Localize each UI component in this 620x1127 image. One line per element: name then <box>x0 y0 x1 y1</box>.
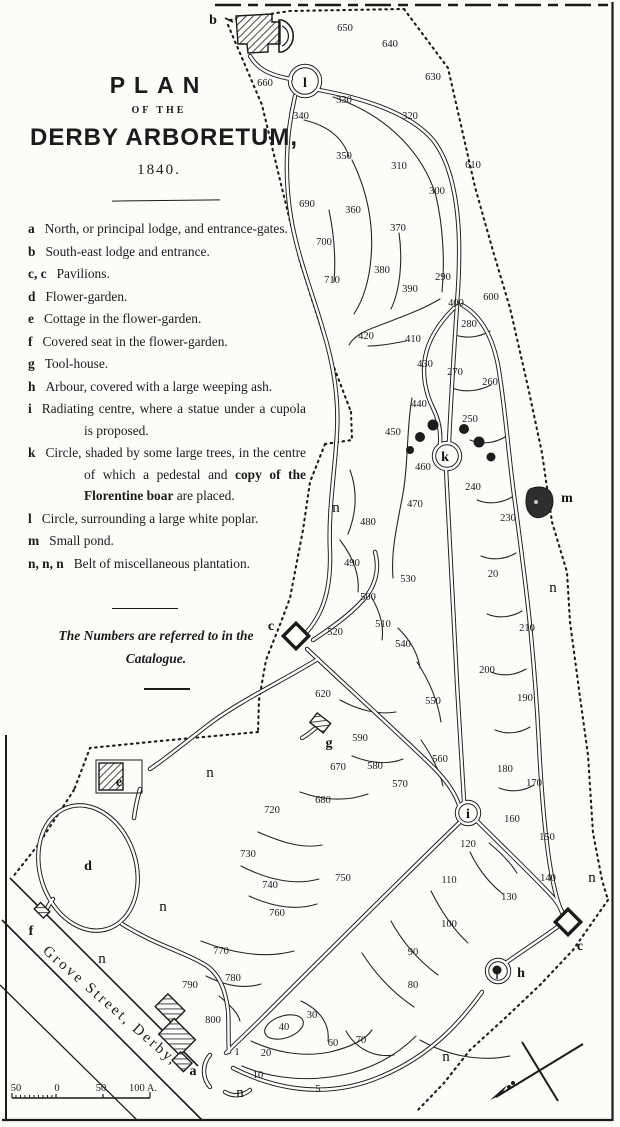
letter-marker-a: a <box>190 1064 197 1079</box>
legend-key: f <box>28 334 42 349</box>
legend-key: a <box>28 221 45 236</box>
catalogue-number-10: 10 <box>253 1070 264 1081</box>
catalogue-number-620: 620 <box>315 689 331 700</box>
letter-marker-h: h <box>517 966 525 981</box>
legend-text: South-east lodge and entrance. <box>45 244 209 259</box>
catalogue-number-400: 400 <box>448 298 464 309</box>
catalogue-number-720: 720 <box>264 805 280 816</box>
catalogue-number-360: 360 <box>345 205 361 216</box>
catalogue-number-430: 430 <box>417 359 433 370</box>
scale-label-1: 0 <box>54 1083 59 1094</box>
letter-marker-n: n <box>236 1085 244 1101</box>
catalogue-number-80: 80 <box>408 980 419 991</box>
letter-marker-n: n <box>206 765 214 781</box>
legend-key: m <box>28 533 49 548</box>
letter-marker-l: l <box>303 76 307 91</box>
legend-text: Pavilions. <box>57 266 110 281</box>
catalogue-number-260: 260 <box>482 377 498 388</box>
legend-key: l <box>28 511 42 526</box>
legend-key: h <box>28 379 45 394</box>
catalogue-number-780: 780 <box>225 973 241 984</box>
legend-item-f: fCovered seat in the flower-garden. <box>28 331 306 353</box>
catalogue-number-480: 480 <box>360 517 376 528</box>
catalogue-number-130: 130 <box>501 892 517 903</box>
catalogue-number-5: 5 <box>315 1084 320 1095</box>
catalogue-number-510: 510 <box>375 619 391 630</box>
catalogue-number-740: 740 <box>262 880 278 891</box>
catalogue-number-280: 280 <box>461 319 477 330</box>
catalogue-number-580: 580 <box>367 761 383 772</box>
catalogue-number-650: 650 <box>337 23 353 34</box>
legend-key: d <box>28 289 45 304</box>
catalogue-number-390: 390 <box>402 284 418 295</box>
letter-marker-g: g <box>326 736 333 751</box>
catalogue-number-560: 560 <box>432 754 448 765</box>
catalogue-number-180: 180 <box>497 764 513 775</box>
legend-item-m: mSmall pond. <box>28 530 306 552</box>
catalogue-number-520: 520 <box>327 627 343 638</box>
letter-marker-n: n <box>159 899 167 915</box>
catalogue-number-210: 210 <box>519 623 535 634</box>
legend-text: Radiating centre, where a statue under a… <box>42 401 306 438</box>
catalogue-number-140: 140 <box>540 873 556 884</box>
letter-marker-n: n <box>588 870 596 886</box>
scale-bar: 50 0 50 100 A. <box>11 1083 157 1098</box>
legend-key: g <box>28 356 45 371</box>
catalogue-number-790: 790 <box>182 980 198 991</box>
map-sheet: Grove Street, Derby, <box>0 0 620 1127</box>
legend-text: Circle, shaded by some large trees, in t… <box>45 445 306 503</box>
catalogue-number-150: 150 <box>539 832 555 843</box>
catalogue-number-190: 190 <box>517 693 533 704</box>
catalogue-number-460: 460 <box>415 462 431 473</box>
catalogue-number-100: 100 <box>441 919 457 930</box>
legend-item-i: iRadiating centre, where a statue under … <box>28 398 306 441</box>
catalogue-number-1: 1 <box>234 1047 239 1058</box>
legend-item-a: aNorth, or principal lodge, and entrance… <box>28 218 306 240</box>
catalogue-number-410: 410 <box>405 334 421 345</box>
scale-label-2: 50 <box>96 1083 107 1094</box>
letter-marker-d: d <box>84 859 92 874</box>
catalogue-number-370: 370 <box>390 223 406 234</box>
legend-item-h: hArbour, covered with a large weeping as… <box>28 376 306 398</box>
catalogue-number-110: 110 <box>441 875 456 886</box>
legend-item-cc: c, cPavilions. <box>28 263 306 285</box>
catalogue-number-310: 310 <box>391 161 407 172</box>
legend-item-nnn: n, n, nBelt of miscellaneous plantation. <box>28 553 306 575</box>
catalogue-number-570: 570 <box>392 779 408 790</box>
catalogue-number-120: 120 <box>460 839 476 850</box>
legend-text: Arbour, covered with a large weeping ash… <box>45 379 272 394</box>
letter-marker-n: n <box>549 580 557 596</box>
catalogue-number-340: 340 <box>293 111 309 122</box>
compass-rose <box>490 1042 583 1101</box>
scale-label-3: 100 A. <box>129 1083 157 1094</box>
legend-item-g: gTool-house. <box>28 353 306 375</box>
catalogue-number-440: 440 <box>411 399 427 410</box>
catalogue-number-250: 250 <box>462 414 478 425</box>
small-pond-m <box>526 487 553 518</box>
letter-marker-k: k <box>441 450 449 465</box>
catalogue-number-30: 30 <box>307 1010 318 1021</box>
letter-marker-b: b <box>209 13 217 28</box>
catalogue-number-750: 750 <box>335 873 351 884</box>
catalogue-number-70: 70 <box>356 1035 367 1046</box>
legend-text: Small pond. <box>49 533 114 548</box>
title-year: 1840. <box>30 162 288 179</box>
catalogue-number-320: 320 <box>402 111 418 122</box>
catalogue-number-470: 470 <box>407 499 423 510</box>
catalogue-number-90: 90 <box>408 947 419 958</box>
catalogue-number-760: 760 <box>269 908 285 919</box>
divider-rule-legend <box>112 608 178 609</box>
legend-text: Cottage in the flower-garden. <box>44 311 201 326</box>
legend-key: i <box>28 401 42 416</box>
legend-item-l: lCircle, surrounding a large white popla… <box>28 508 306 530</box>
catalogue-number-290: 290 <box>435 272 451 283</box>
catalogue-number-540: 540 <box>395 639 411 650</box>
legend-key: k <box>28 445 45 460</box>
letter-marker-i: i <box>466 807 470 822</box>
map-title-block: PLAN OF THE DERBY ARBORETUM, 1840. <box>30 72 288 179</box>
scale-label-0: 50 <box>11 1083 22 1094</box>
catalogue-number-330: 330 <box>336 95 352 106</box>
catalogue-number-380: 380 <box>374 265 390 276</box>
letter-marker-n: n <box>442 1049 450 1065</box>
catalogue-number-20: 20 <box>488 569 499 580</box>
catalogue-number-450: 450 <box>385 427 401 438</box>
catalogue-number-200: 200 <box>479 665 495 676</box>
catalogue-number-640: 640 <box>382 39 398 50</box>
legend-key: c, c <box>28 266 57 281</box>
catalogue-number-680: 680 <box>315 795 331 806</box>
weeping-ash-tree-h <box>493 966 502 980</box>
legend-item-k: kCircle, shaded by some large trees, in … <box>28 442 306 507</box>
catalogue-number-60: 60 <box>328 1038 339 1049</box>
catalogue-number-160: 160 <box>504 814 520 825</box>
catalogue-number-240: 240 <box>465 482 481 493</box>
legend-text: Tool-house. <box>45 356 108 371</box>
title-name: DERBY ARBORETUM, <box>30 124 288 152</box>
catalogue-number-40: 40 <box>279 1022 290 1033</box>
catalogue-number-670: 670 <box>330 762 346 773</box>
letter-marker-n: n <box>98 951 106 967</box>
legend-item-d: dFlower-garden. <box>28 286 306 308</box>
legend-text: North, or principal lodge, and entrance-… <box>45 221 288 236</box>
letter-marker-e: e <box>116 775 122 790</box>
catalogue-number-710: 710 <box>324 275 340 286</box>
catalogue-number-800: 800 <box>205 1015 221 1026</box>
catalogue-number-20: 20 <box>261 1048 272 1059</box>
legend-text: Flower-garden. <box>45 289 127 304</box>
catalogue-number-770: 770 <box>213 946 229 957</box>
legend-key: n, n, n <box>28 556 74 571</box>
building-pavilion-west-c <box>283 623 308 648</box>
title-of-the: OF THE <box>30 105 288 116</box>
catalogue-number-490: 490 <box>344 558 360 569</box>
title-plan: PLAN <box>30 72 288 99</box>
catalogue-number-610: 610 <box>465 160 481 171</box>
catalogue-number-600: 600 <box>483 292 499 303</box>
letter-marker-n: n <box>332 500 340 516</box>
catalogue-note: The Numbers are referred to in the Catal… <box>34 624 278 670</box>
legend-list: aNorth, or principal lodge, and entrance… <box>28 218 306 575</box>
letter-marker-f: f <box>29 924 34 939</box>
legend-key: e <box>28 311 44 326</box>
legend-text: Belt of miscellaneous plantation. <box>74 556 250 571</box>
catalogue-number-700: 700 <box>316 237 332 248</box>
legend-text: Circle, surrounding a large white poplar… <box>42 511 259 526</box>
letter-marker-m: m <box>561 491 573 506</box>
catalogue-number-350: 350 <box>336 151 352 162</box>
catalogue-number-590: 590 <box>352 733 368 744</box>
building-pavilion-east-c <box>555 909 580 934</box>
catalogue-number-690: 690 <box>299 199 315 210</box>
divider-rule-note <box>144 688 190 690</box>
legend-text: Covered seat in the flower-garden. <box>42 334 227 349</box>
catalogue-number-420: 420 <box>358 331 374 342</box>
catalogue-number-530: 530 <box>400 574 416 585</box>
catalogue-number-630: 630 <box>425 72 441 83</box>
catalogue-number-270: 270 <box>447 367 463 378</box>
letter-marker-c: c <box>577 939 583 954</box>
catalogue-number-500: 500 <box>360 592 376 603</box>
catalogue-number-170: 170 <box>526 778 542 789</box>
catalogue-number-230: 230 <box>500 513 516 524</box>
legend-key: b <box>28 244 45 259</box>
legend-item-b: bSouth-east lodge and entrance. <box>28 241 306 263</box>
catalogue-number-730: 730 <box>240 849 256 860</box>
legend-item-e: eCottage in the flower-garden. <box>28 308 306 330</box>
catalogue-number-550: 550 <box>425 696 441 707</box>
catalogue-number-300: 300 <box>429 186 445 197</box>
